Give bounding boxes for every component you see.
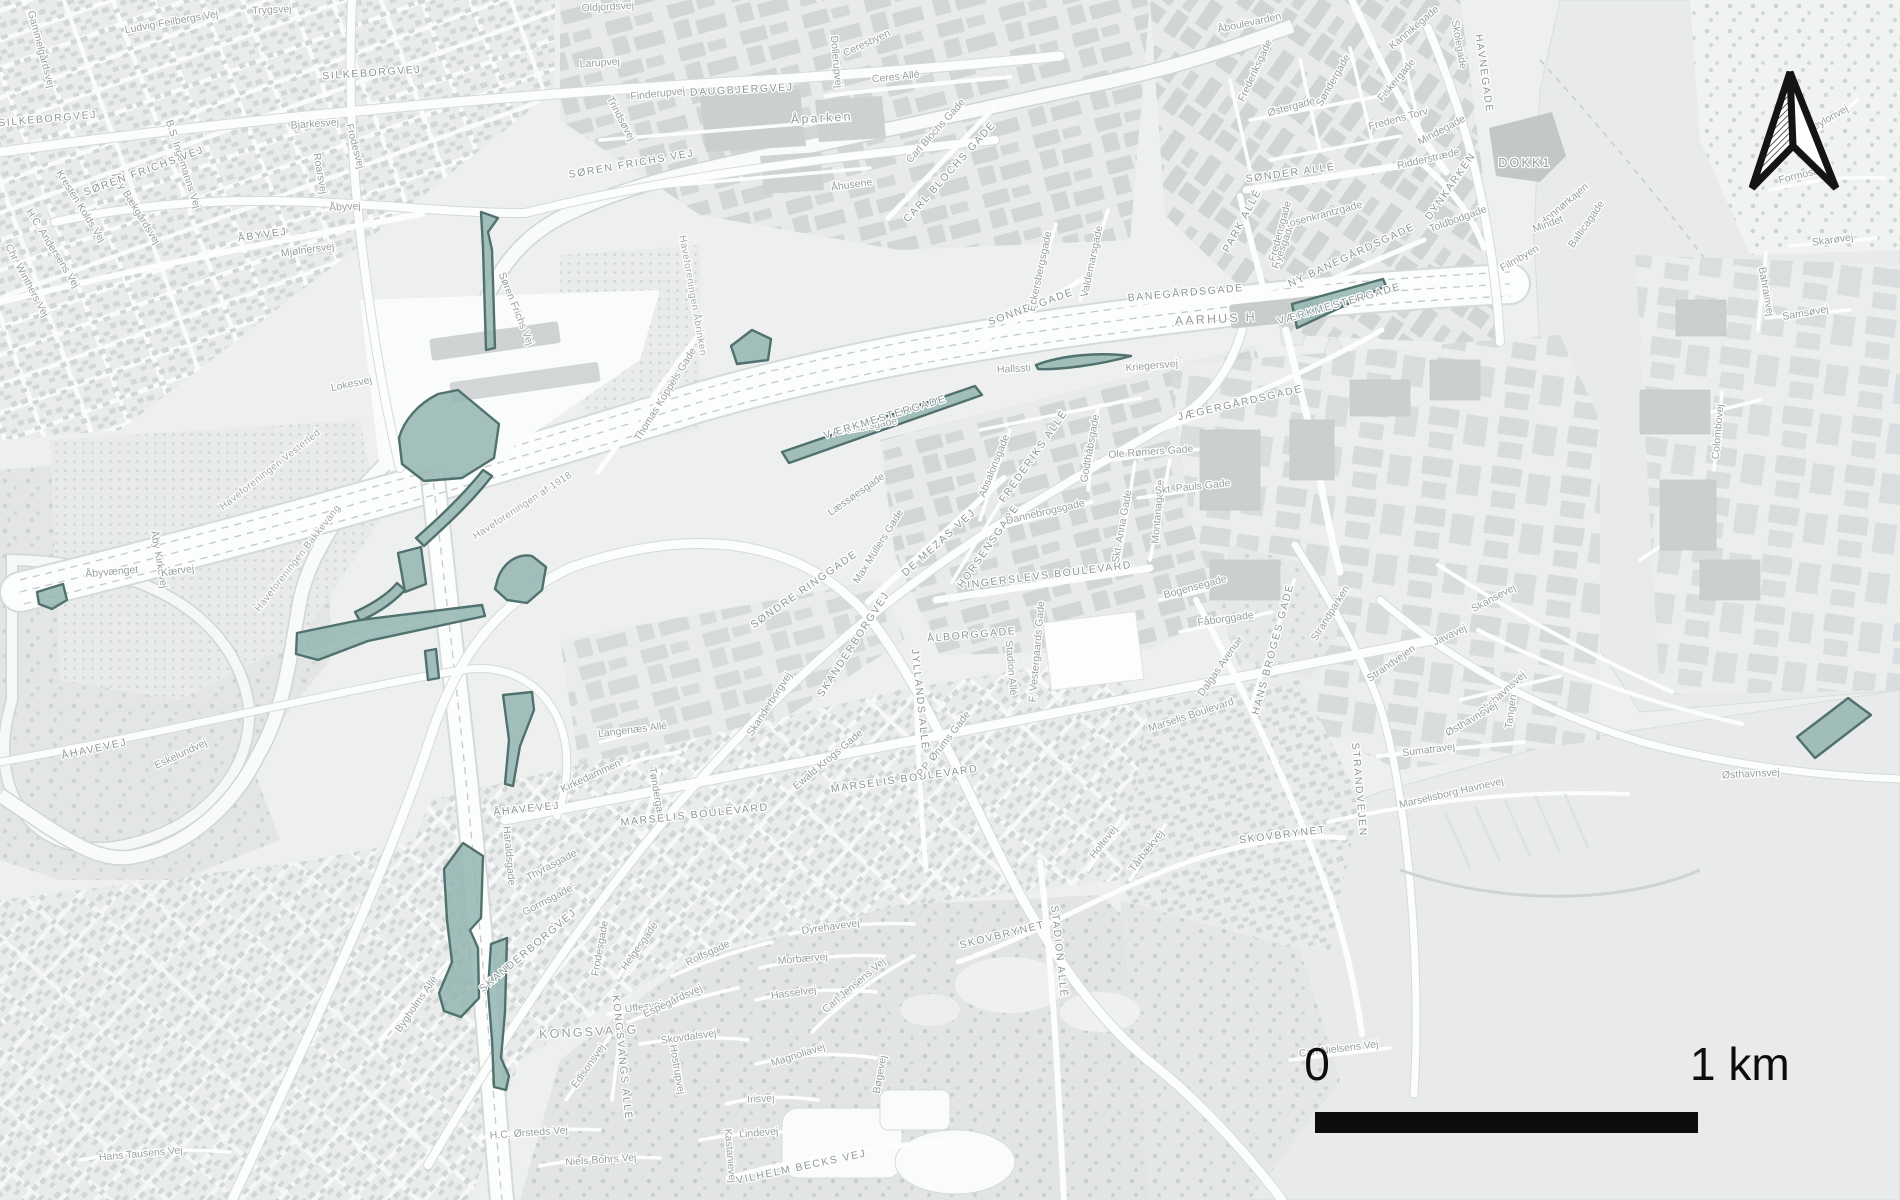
highlighted-area [425,649,439,680]
basemap: GammelgårdsvejLudvig Feilbergs VejTrygsv… [0,0,1900,1200]
scale-bar-rect [1315,1112,1698,1133]
street-label: Hallssti [997,362,1031,376]
street-label: Irisvej [747,1092,775,1105]
scale-zero-label: 0 [1304,1038,1330,1090]
map-screenshot: GammelgårdsvejLudvig Feilbergs VejTrygsv… [0,0,1900,1200]
street-label: Trygsvej [252,3,292,17]
scale-distance-label: 1 km [1690,1038,1790,1090]
street-label: Åbyvej [329,199,361,214]
place-label: DOKK1 [1498,156,1551,170]
city-map-canvas[interactable]: GammelgårdsvejLudvig Feilbergs VejTrygsv… [0,0,1900,1200]
